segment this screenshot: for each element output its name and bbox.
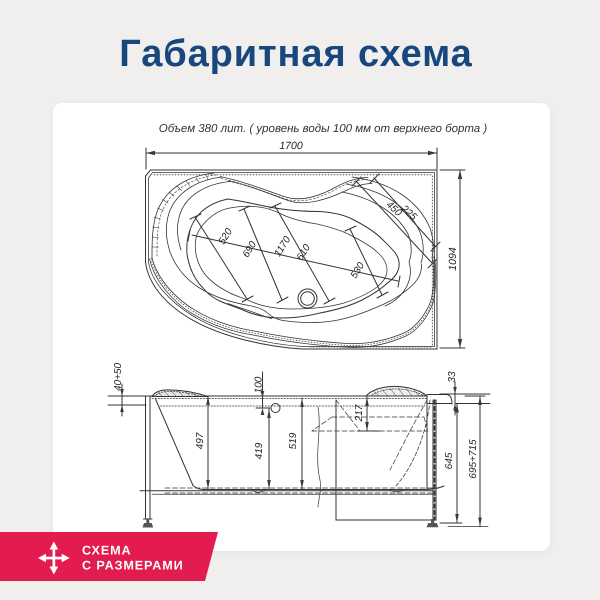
svg-text:СХЕМА: СХЕМА xyxy=(82,544,132,558)
svg-text:530: 530 xyxy=(349,260,367,280)
svg-text:100: 100 xyxy=(254,376,265,393)
svg-text:1094: 1094 xyxy=(447,247,459,271)
svg-text:40+50: 40+50 xyxy=(113,363,124,392)
svg-text:217: 217 xyxy=(354,404,365,422)
svg-text:33: 33 xyxy=(447,371,458,383)
svg-text:690: 690 xyxy=(241,239,259,259)
svg-text:Объем 380 лит. ( уровень воды: Объем 380 лит. ( уровень воды 100 мм от … xyxy=(159,123,488,135)
svg-text:1700: 1700 xyxy=(279,140,303,152)
svg-text:С РАЗМЕРАМИ: С РАЗМЕРАМИ xyxy=(82,559,184,573)
svg-text:1170: 1170 xyxy=(273,234,294,258)
svg-text:695+715: 695+715 xyxy=(468,439,479,479)
svg-text:497: 497 xyxy=(195,432,206,449)
svg-text:419: 419 xyxy=(254,442,265,459)
svg-text:519: 519 xyxy=(288,432,299,449)
svg-text:645: 645 xyxy=(444,452,455,469)
